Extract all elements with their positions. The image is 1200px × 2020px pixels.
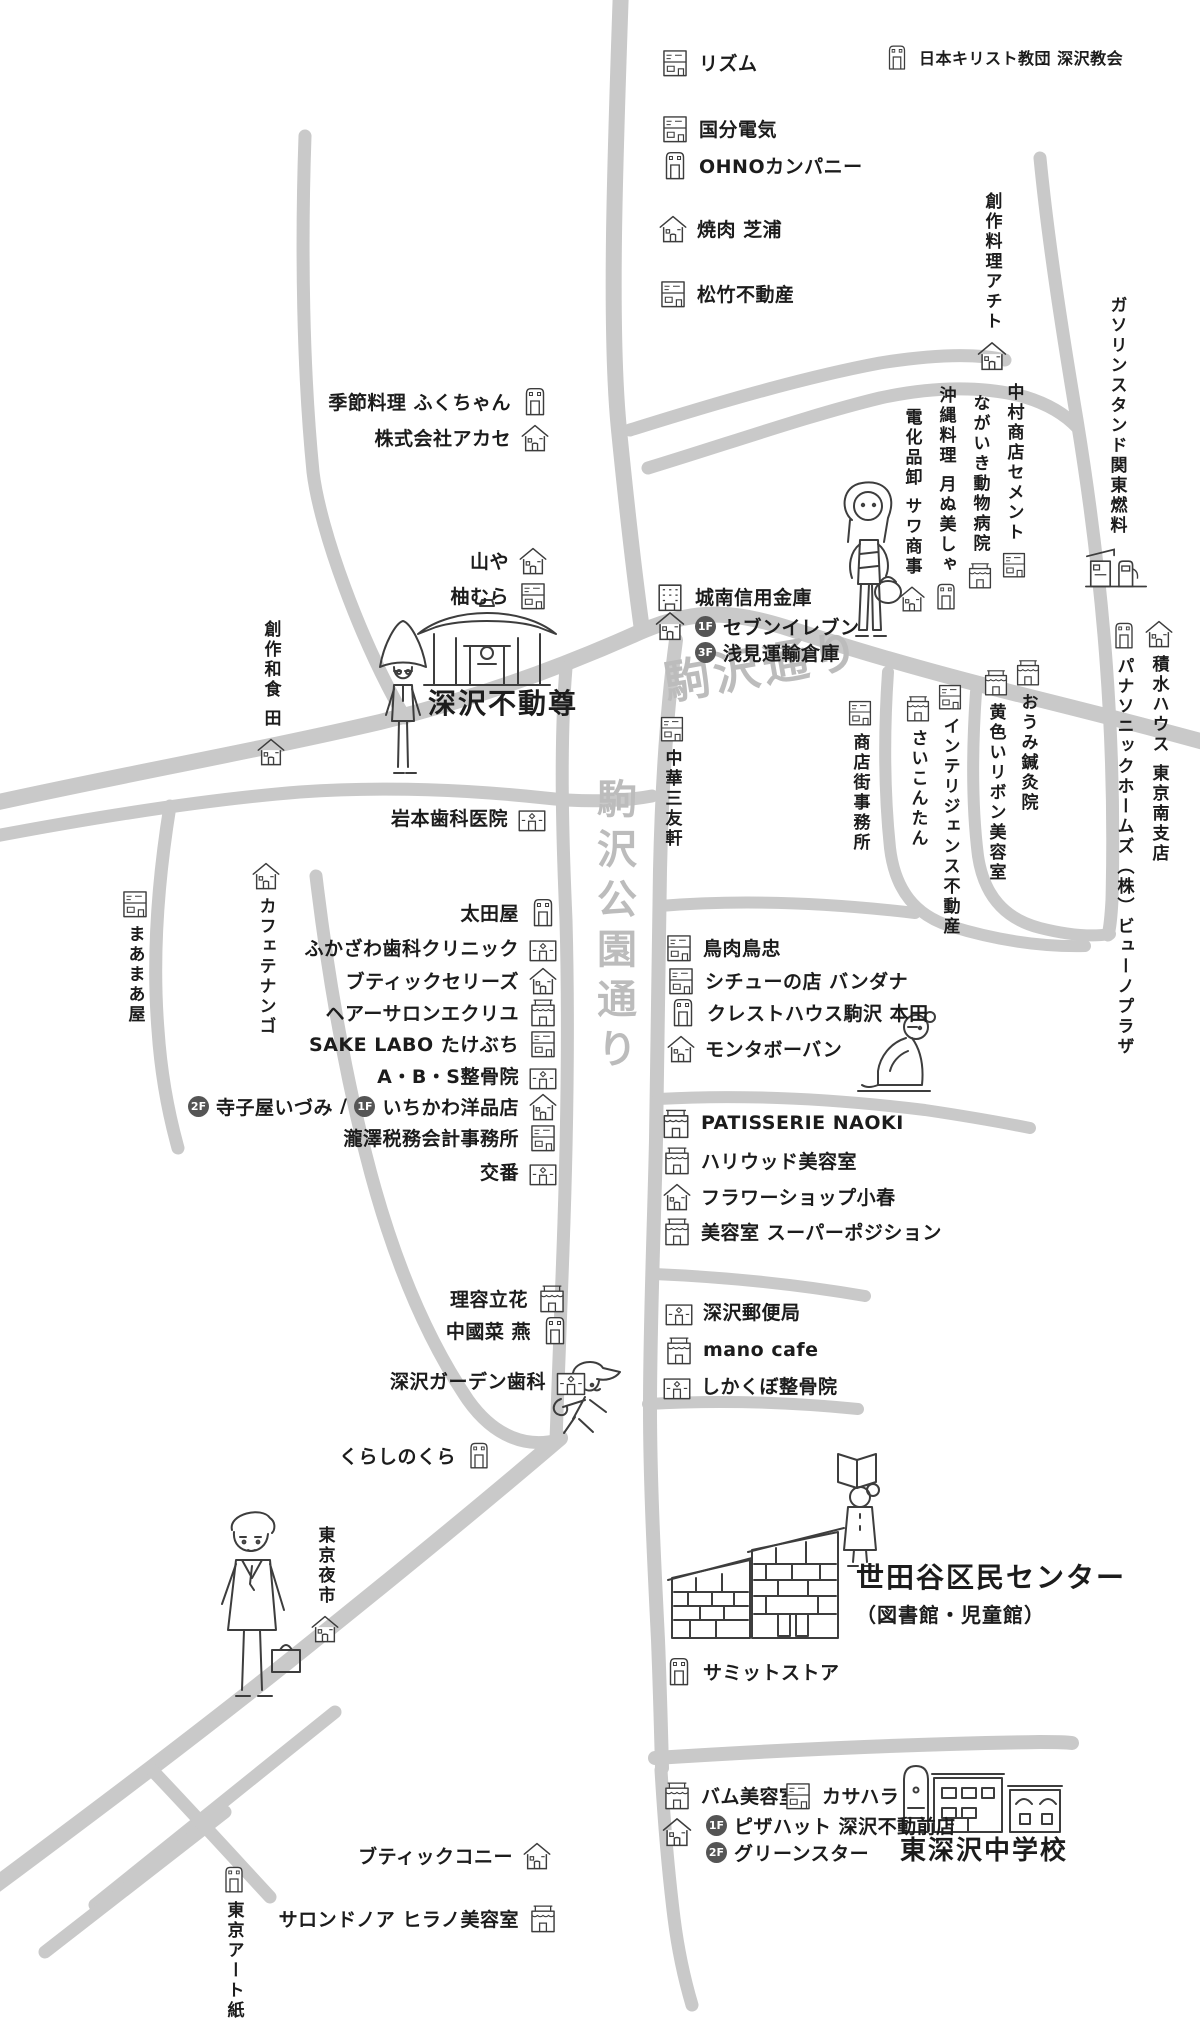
place-denka: 電化品卸 サワ商事	[896, 408, 928, 614]
place-post-office: 深沢郵便局	[662, 1293, 801, 1329]
place-koban: 交番	[480, 1153, 560, 1189]
place-label: ヘアーサロンエクリユ	[326, 999, 519, 1026]
place-label: 焼肉 芝浦	[697, 215, 782, 242]
shop-icon	[781, 1778, 815, 1812]
building-icon	[218, 1862, 250, 1896]
house-icon	[896, 582, 928, 614]
place-mano-cafe: mano cafe	[662, 1333, 819, 1367]
floor-badge: 2F	[706, 1842, 727, 1863]
place-label: 岩本歯科医院	[391, 804, 508, 831]
shop-icon	[118, 886, 152, 920]
office-icon	[844, 696, 876, 728]
building-icon	[518, 383, 552, 419]
place-label: 松竹不動産	[697, 280, 795, 307]
place-oumi: おうみ鍼灸院	[1012, 656, 1044, 813]
place-intelligence: インテリジェンス不動産	[934, 680, 966, 937]
place-flower: フラワーショップ小春	[660, 1179, 896, 1213]
shop-icon	[660, 1778, 694, 1812]
place-label: 交番	[480, 1158, 519, 1185]
place-label: 黄色いリボン美容室	[984, 703, 1009, 883]
place-label: サロンドノア ヒラノ美容室	[279, 1905, 519, 1932]
house-icon	[652, 606, 688, 644]
office-icon	[526, 1120, 560, 1154]
place-sousaku-den: 創作和食 田	[254, 620, 288, 768]
building-icon	[526, 895, 560, 929]
place-label: ながいき動物病院	[968, 394, 993, 554]
separator: /	[340, 1095, 347, 1117]
house-icon	[308, 1611, 342, 1645]
building-icon	[538, 1313, 572, 1347]
restaurant-icon	[656, 712, 688, 744]
landmark-school: 東深沢中学校	[900, 1830, 1068, 1867]
shop-icon	[660, 1214, 694, 1248]
landmark-civic-center: 世田谷区民センター（図書館・児童館）	[856, 1556, 1126, 1628]
place-church: 日本キリスト教団 深沢教会	[882, 40, 1123, 74]
place-label: 深沢ガーデン歯科	[390, 1367, 546, 1394]
place-patisserie: PATISSERIE NAOKI	[658, 1105, 904, 1141]
place-asami: 3F浅見運輸倉庫	[695, 639, 840, 666]
place-label: セブンイレブン	[723, 613, 860, 640]
building-icon	[463, 1438, 495, 1472]
place-ohno: OHNOカンパニー	[658, 148, 863, 182]
shop-icon	[516, 578, 550, 612]
road-ew-908	[660, 902, 915, 913]
lampshade-hat-man-character	[372, 615, 434, 787]
house-icon	[526, 963, 560, 997]
street-label-komazawa-koen-dori: 駒沢公園通り	[584, 778, 642, 1078]
clinic-icon	[515, 800, 549, 834]
floor-badge: 2F	[188, 1096, 209, 1117]
place-label: 山や	[470, 547, 509, 574]
reading-woman-character	[820, 1448, 896, 1572]
building-icon	[666, 995, 700, 1029]
place-label: 積水ハウス 東京南支店	[1147, 655, 1172, 864]
place-superposition: 美容室 スーパーポジション	[660, 1214, 942, 1248]
place-label: ブティックセリーズ	[346, 967, 519, 994]
place-yoichi: 東京夜市	[308, 1526, 342, 1645]
place-label: フラワーショップ小春	[701, 1183, 896, 1210]
place-label: パナソニックホームズ（株）ビューノプラザ	[1112, 657, 1137, 1057]
place-saikontan: さいこんたん	[902, 692, 934, 849]
road-cross-stub	[152, 1770, 270, 1897]
office-icon	[934, 680, 966, 712]
place-label: おうみ鍼灸院	[1016, 693, 1041, 813]
place-fukuchan: 季節料理 ふくちゃん	[328, 383, 552, 419]
place-label: 東京夜市	[313, 1526, 338, 1606]
floor-badge: 3F	[695, 642, 716, 663]
place-shochiku: 松竹不動産	[656, 276, 795, 310]
salon-icon	[526, 1901, 560, 1935]
place-label: ふかざわ歯科クリニック	[304, 934, 519, 961]
house-icon	[974, 337, 1010, 373]
place-iwamoto: 岩本歯科医院	[391, 800, 549, 834]
road-ew-1402	[648, 1402, 858, 1409]
clinic-icon	[526, 930, 560, 964]
place-nagaiki: ながいき動物病院	[964, 394, 996, 591]
place-label: 創作和食 田	[259, 620, 284, 729]
house-icon	[664, 1031, 698, 1065]
road-bottom-ew	[655, 1742, 1072, 1758]
house-icon	[520, 1838, 554, 1872]
place-garden-dental: 深沢ガーデン歯科	[390, 1362, 589, 1398]
place-ecru: ヘアーサロンエクリユ	[326, 995, 560, 1029]
place-label: 瀧澤税務会計事務所	[343, 1124, 519, 1151]
place-label: 国分電気	[699, 115, 777, 142]
shop-icon	[658, 45, 692, 79]
place-label: ガソリンスタンド関東燃料	[1105, 296, 1130, 536]
place-connie: ブティックコニー	[358, 1838, 554, 1872]
place-maamaa: まあまあ屋	[118, 886, 152, 1025]
place-label: 商店街事務所	[848, 733, 873, 853]
clinic-icon	[660, 1368, 694, 1402]
place-takizawa: 瀧澤税務会計事務所	[343, 1120, 560, 1154]
place-label: 太田屋	[460, 899, 519, 926]
house-icon	[516, 543, 550, 577]
place-label: 季節料理 ふくちゃん	[328, 388, 511, 415]
place-label: 浅見運輸倉庫	[723, 639, 840, 666]
shop-icon	[660, 1143, 694, 1177]
place-label: 深沢郵便局	[703, 1298, 801, 1325]
house-icon	[526, 1088, 560, 1124]
place-label: カフェテナンゴ	[254, 897, 279, 1037]
road-north-vertical	[614, 0, 642, 630]
floor-badge: 1F	[706, 1815, 727, 1836]
shop-icon	[656, 276, 690, 310]
place-yamaya: 山や	[470, 543, 550, 577]
shop-icon	[902, 692, 934, 724]
place-label: しかくぼ整骨院	[701, 1372, 838, 1399]
place-label: 城南信用金庫	[695, 583, 812, 610]
road-maamaa-diagonal	[0, 789, 652, 838]
floor-badge: 1F	[695, 616, 716, 637]
place-crest: クレストハウス駒沢 本田	[666, 995, 929, 1029]
shop-icon	[658, 1105, 694, 1141]
place-label: SAKE LABO たけぶち	[309, 1030, 519, 1057]
church-building-icon	[882, 40, 912, 74]
place-montaboban: モンタボーバン	[664, 1031, 842, 1065]
place-panasonic: パナソニックホームズ（株）ビューノプラザ	[1108, 618, 1140, 1057]
shop-icon	[662, 930, 696, 964]
place-kiiroi: 黄色いリボン美容室	[980, 666, 1012, 883]
place-label: 鳥肉鳥忠	[703, 934, 781, 961]
place-kasahara: カサハラ	[781, 1778, 899, 1812]
place-gasoline: ガソリンスタンド関東燃料	[1082, 296, 1152, 593]
place-label: 株式会社アカセ	[374, 424, 511, 451]
house-icon	[659, 1812, 695, 1850]
clinic-icon	[526, 1058, 560, 1092]
shop-icon	[526, 995, 560, 1029]
building-icon	[1108, 618, 1140, 652]
place-sakelabo: SAKE LABO たけぶち	[309, 1026, 560, 1060]
fukasawa-shop-map: 駒沢通り 駒沢公園通り	[0, 0, 1200, 2020]
place-shikakubo: しかくぼ整骨院	[660, 1368, 838, 1402]
house-icon	[656, 211, 690, 245]
place-tokyo-art: 東京アート紙行	[218, 1862, 250, 2020]
place-label: 中國菜 燕	[446, 1317, 531, 1344]
floor-badge: 1F	[354, 1096, 375, 1117]
place-salon-noa: サロンドノア ヒラノ美容室	[279, 1901, 560, 1935]
place-label: ハリウッド美容室	[701, 1147, 857, 1174]
shop-icon	[526, 1026, 560, 1060]
place-boutique-series: ブティックセリーズ	[346, 963, 560, 997]
clinic-icon	[964, 559, 996, 591]
place-yakiniku: 焼肉 芝浦	[656, 211, 782, 245]
place-label: リズム	[699, 49, 758, 76]
place-label: さいこんたん	[906, 729, 931, 849]
place-shotengai: 商店街事務所	[844, 696, 876, 853]
house-icon	[254, 734, 288, 768]
place-chugoku: 中國菜 燕	[446, 1313, 572, 1347]
house-icon	[518, 420, 552, 454]
shop-icon	[664, 963, 698, 997]
place-tachibana: 理容立花	[450, 1281, 569, 1315]
place-label: くらしのくら	[339, 1442, 456, 1469]
place-cafetenango: カフェテナンゴ	[248, 858, 284, 1037]
place-terakoya-ichikawa: 2F寺子屋いづみ/1Fいちかわ洋品店	[188, 1088, 560, 1124]
place-label: サミットストア	[703, 1658, 840, 1685]
clinic-icon	[1012, 656, 1044, 688]
house-icon	[1142, 616, 1176, 650]
place-label: 理容立花	[450, 1285, 528, 1312]
place-summit: サミットストア	[662, 1653, 840, 1689]
place-toriniku: 鳥肉鳥忠	[662, 930, 781, 964]
place-label: mano cafe	[703, 1339, 819, 1361]
place-ootaya: 太田屋	[460, 895, 560, 929]
house-icon	[248, 858, 284, 892]
place-yuzumura: 柚むら	[450, 578, 550, 612]
barber-icon	[535, 1281, 569, 1315]
cafe-icon	[662, 1333, 696, 1367]
place-chuka: 中華三友軒	[656, 712, 688, 849]
place-kokubu: 国分電気	[658, 111, 777, 145]
place-label: いちかわ洋品店	[382, 1093, 519, 1120]
shop-icon	[998, 548, 1030, 580]
place-abs: A・B・S整骨院	[377, 1058, 560, 1092]
road-maamaa-vertical	[156, 806, 178, 1148]
police-box-icon	[526, 1153, 560, 1189]
place-label: 創作料理アチト	[980, 192, 1005, 332]
businessman-character	[212, 1508, 318, 1730]
place-okinawa: 沖縄料理 月ぬ美しゃ	[930, 386, 962, 612]
place-label: モンタボーバン	[705, 1035, 842, 1062]
place-label: 日本キリスト教団 深沢教会	[919, 45, 1123, 69]
place-label: クレストハウス駒沢 本田	[707, 999, 929, 1026]
road-parallel-1	[95, 1712, 335, 1905]
salon-icon	[980, 666, 1012, 698]
place-label: 沖縄料理 月ぬ美しゃ	[934, 386, 959, 575]
store-icon	[662, 1653, 696, 1689]
building-icon	[658, 148, 692, 182]
place-label: まあまあ屋	[123, 925, 148, 1025]
place-label: 中華三友軒	[660, 749, 685, 849]
shop-icon	[658, 111, 692, 145]
gas-station-icon	[1082, 541, 1152, 593]
place-label: ブティックコニー	[358, 1842, 513, 1869]
place-label: インテリジェンス不動産	[938, 717, 963, 937]
place-label: 美容室 スーパーポジション	[701, 1218, 942, 1245]
place-label: 柚むら	[450, 582, 509, 609]
place-stew: シチューの店 バンダナ	[664, 963, 908, 997]
post-office-icon	[662, 1293, 696, 1329]
place-label: PATISSERIE NAOKI	[701, 1112, 904, 1134]
place-label: シチューの店 バンダナ	[705, 967, 908, 994]
place-label: 電化品卸 サワ商事	[900, 408, 925, 577]
landmark-label: 深沢不動尊	[428, 687, 578, 720]
landmark-label: 世田谷区民センター	[856, 1556, 1126, 1596]
place-label: OHNOカンパニー	[699, 152, 863, 179]
place-nakamura: 中村商店セメント	[998, 383, 1030, 580]
landmark-label: 東深沢中学校	[900, 1836, 1068, 1866]
place-label: 中村商店セメント	[1002, 383, 1027, 543]
place-achito: 創作料理アチト	[974, 192, 1010, 373]
house-icon	[660, 1179, 694, 1213]
place-akase: 株式会社アカセ	[374, 420, 552, 454]
building-icon	[930, 580, 962, 612]
place-rhythm: リズム	[658, 45, 758, 79]
place-seven: 1Fセブンイレブン	[695, 613, 860, 640]
place-greenstar: 2Fグリーンスター	[706, 1839, 869, 1866]
place-label: A・B・S整骨院	[377, 1062, 519, 1089]
place-label: グリーンスター	[734, 1839, 869, 1866]
place-bam: バム美容室	[660, 1778, 799, 1812]
place-sekisui: 積水ハウス 東京南支店	[1142, 616, 1176, 864]
place-label: カサハラ	[822, 1782, 899, 1809]
landmark-fudoson: 深沢不動尊	[428, 682, 578, 722]
landmark-sublabel: （図書館・児童館）	[856, 1599, 1126, 1628]
place-fukazawa-dental: ふかざわ歯科クリニック	[304, 930, 560, 964]
place-kurashi: くらしのくら	[339, 1438, 495, 1472]
place-label: 東京アート紙行	[222, 1901, 247, 2020]
place-label: 寺子屋いづみ	[216, 1093, 333, 1120]
clinic-icon	[553, 1362, 589, 1398]
place-hollywood: ハリウッド美容室	[660, 1143, 857, 1177]
